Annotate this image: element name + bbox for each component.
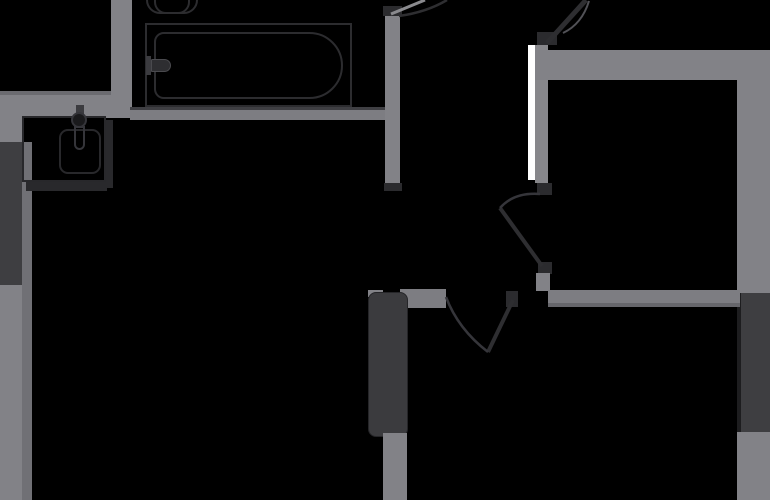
wall-bottom-mid — [383, 433, 407, 500]
floor-plan-canvas — [0, 0, 770, 500]
sink-faucet-spout — [74, 126, 85, 150]
wall-bedroom-left-stub — [536, 273, 550, 291]
wall-exterior-right-lower — [737, 432, 770, 500]
wall-exterior-left-lower — [0, 285, 22, 500]
living-door-leaf — [488, 300, 513, 352]
sink-shadow-bottom — [26, 182, 107, 191]
wall-exterior-left-upper — [0, 118, 22, 144]
wall-mid-horizontal — [548, 290, 740, 303]
bathtub-faucet-spout — [151, 59, 171, 72]
hall-door-leaf — [500, 208, 542, 266]
sink-shadow-right — [106, 120, 113, 188]
hall-door-arc — [500, 194, 540, 208]
jamb-entry-door — [537, 32, 557, 45]
window-right — [741, 293, 770, 432]
toilet-inner — [154, 0, 190, 14]
panel-dark-glazed — [368, 292, 408, 437]
wall-bathroom-right — [385, 13, 400, 183]
jamb-hall-door-top — [537, 183, 552, 195]
wall-exterior-left-inner-edge — [22, 142, 32, 500]
wall-mid-horizontal-edge — [548, 303, 740, 307]
jamb-bathroom-wall-bottom — [384, 183, 402, 191]
wall-bathroom-left — [111, 0, 132, 118]
entry-door-arc — [563, 1, 589, 33]
jamb-bathroom-door-top — [383, 6, 402, 16]
bathroom-door-arc — [399, 0, 447, 16]
bathtub-inner — [154, 32, 343, 99]
wall-bedroom-top — [535, 50, 770, 80]
window-left — [0, 142, 22, 285]
wall-exterior-right-upper — [737, 50, 770, 293]
jamb-living-door — [506, 291, 518, 307]
wall-bathroom-bottom — [130, 110, 398, 120]
door-panel-white — [528, 45, 535, 180]
living-door-arc — [446, 297, 488, 352]
